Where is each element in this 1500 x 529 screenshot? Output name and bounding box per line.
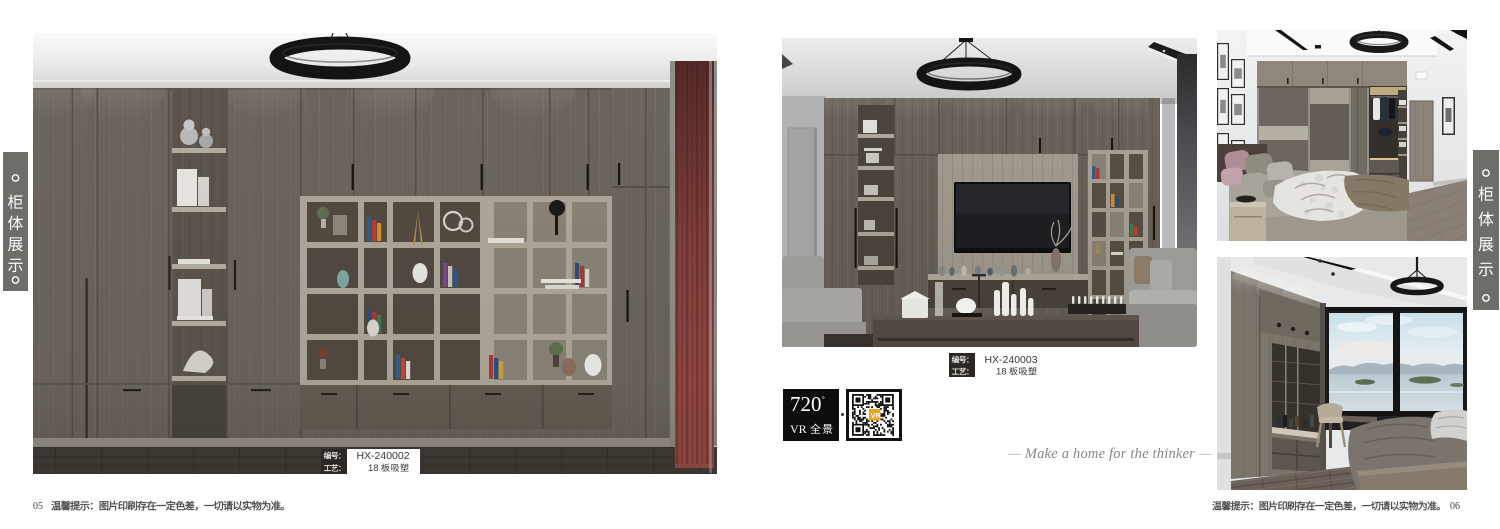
svg-text:18: 18 <box>368 463 379 474</box>
svg-text:05: 05 <box>33 501 43 512</box>
svg-text:18: 18 <box>996 367 1007 378</box>
svg-text:06: 06 <box>1450 501 1460 512</box>
svg-text:VR: VR <box>790 422 807 436</box>
svg-text:VR: VR <box>871 411 882 420</box>
svg-text:HX-240003: HX-240003 <box>984 354 1037 366</box>
svg-text:HX-240002: HX-240002 <box>356 450 409 462</box>
